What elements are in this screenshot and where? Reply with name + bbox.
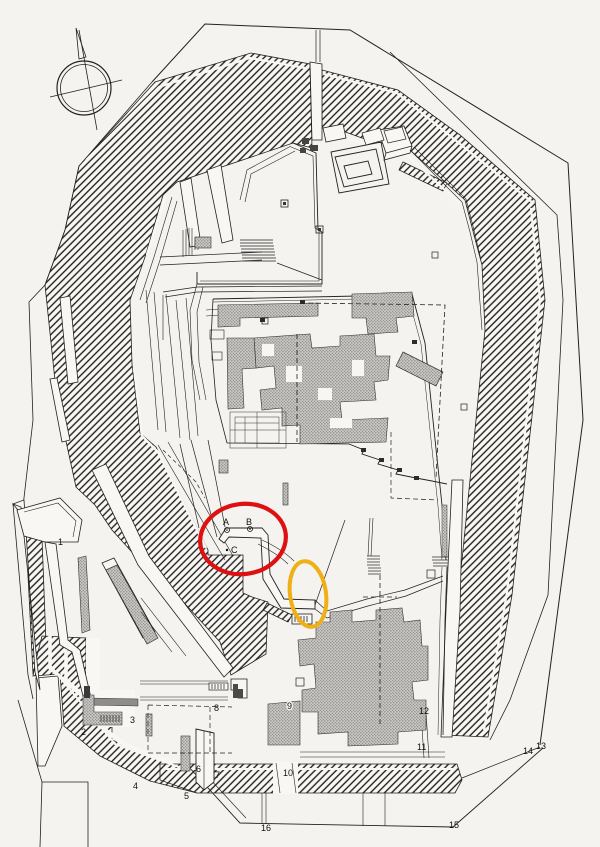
svg-text:5: 5 [184, 791, 189, 801]
svg-text:10: 10 [283, 768, 293, 778]
svg-text:3: 3 [130, 715, 135, 725]
svg-text:11: 11 [417, 742, 426, 752]
svg-text:13: 13 [536, 741, 546, 751]
svg-text:12: 12 [419, 706, 429, 716]
svg-text:A: A [223, 517, 229, 527]
svg-text:4: 4 [133, 781, 138, 791]
svg-text:16: 16 [261, 823, 271, 833]
svg-text:6: 6 [196, 764, 201, 774]
svg-text:9: 9 [287, 701, 292, 711]
svg-text:15: 15 [449, 820, 459, 830]
svg-text:8: 8 [214, 703, 219, 713]
svg-text:C: C [231, 545, 238, 555]
svg-text:B: B [246, 517, 252, 527]
svg-text:2: 2 [81, 727, 86, 737]
svg-text:7: 7 [215, 770, 220, 780]
svg-text:14: 14 [523, 746, 533, 756]
svg-text:1: 1 [58, 537, 63, 547]
